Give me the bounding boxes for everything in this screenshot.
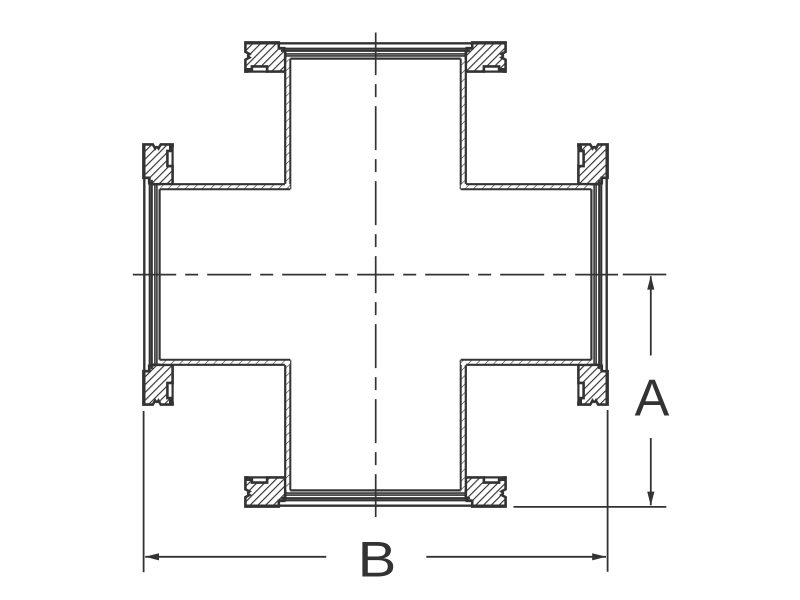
svg-text:A: A — [635, 369, 670, 427]
svg-text:B: B — [358, 532, 397, 587]
